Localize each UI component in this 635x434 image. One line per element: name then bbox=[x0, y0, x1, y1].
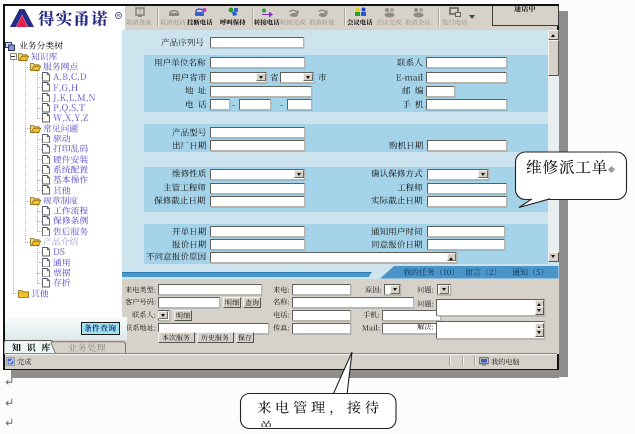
svg-text:R: R bbox=[116, 13, 120, 18]
svg-text:T: T bbox=[138, 10, 142, 16]
